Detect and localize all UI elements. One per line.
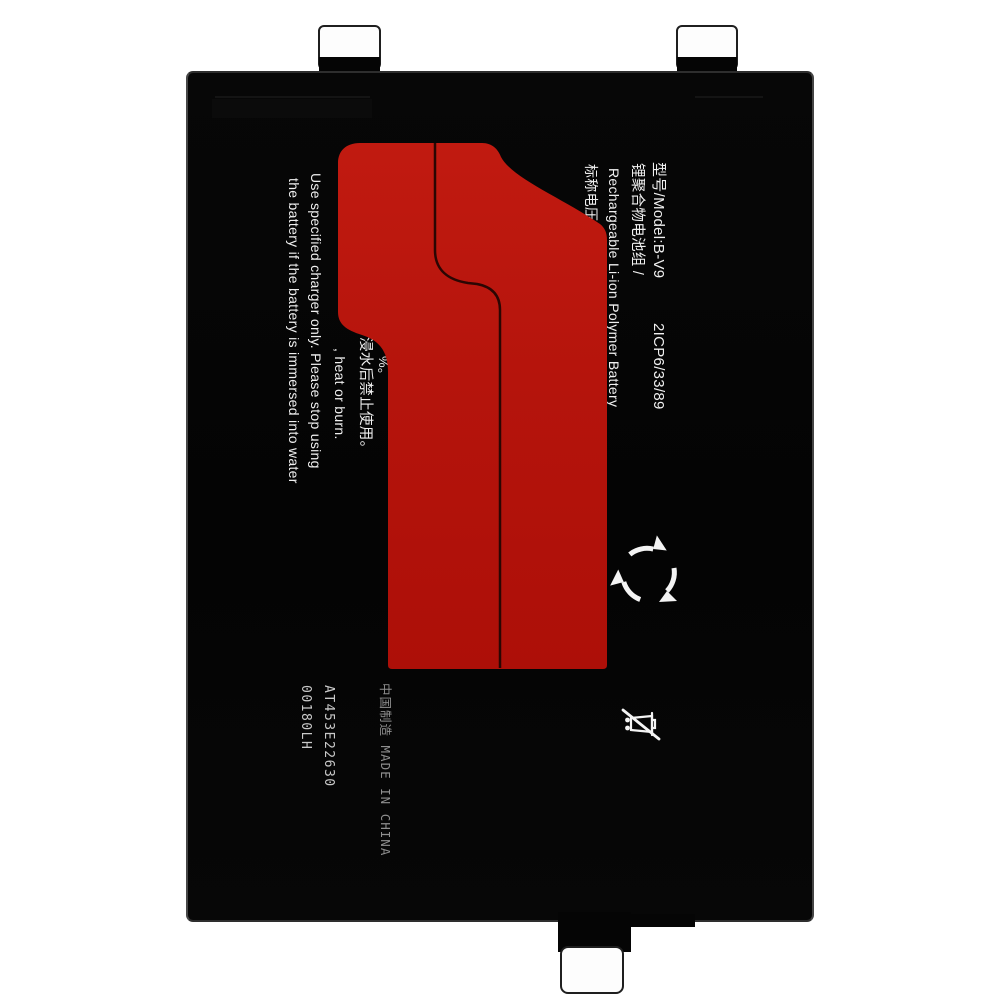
label-serial1-text: AT453E22630 xyxy=(322,685,335,788)
battery-product-photo: 型号/Model:B-V9 2ICP6/33/89 锂聚合物电池组 / Rech… xyxy=(0,0,1000,1000)
label-voltage-text: 标称电压 xyxy=(584,164,598,221)
label-cell-code-text: 2ICP6/33/89 xyxy=(651,323,666,410)
label-model-text: 型号/Model:B-V9 xyxy=(651,162,666,278)
label-warning-water-text: the battery if the battery is immersed i… xyxy=(287,178,301,484)
label-fragment-text: %。 xyxy=(377,356,390,381)
label-type-cn-text: 锂聚合物电池组 / xyxy=(630,163,645,275)
label-warning-charger-text: Use specified charger only. Please stop … xyxy=(309,173,323,469)
label-origin-text: 中国制造 MADE IN CHINA xyxy=(379,683,392,856)
label-text-layer: 型号/Model:B-V9 2ICP6/33/89 锂聚合物电池组 / Rech… xyxy=(0,0,1000,1000)
label-type-en-text: Rechargeable Li-ion Polymer Battery xyxy=(607,168,621,407)
label-warning-cn-text: 浸水后禁止使用。 xyxy=(358,337,373,455)
label-serial2-text: 00180LH xyxy=(299,685,312,750)
label-warning-heat-text: , heat or burn. xyxy=(333,348,347,440)
